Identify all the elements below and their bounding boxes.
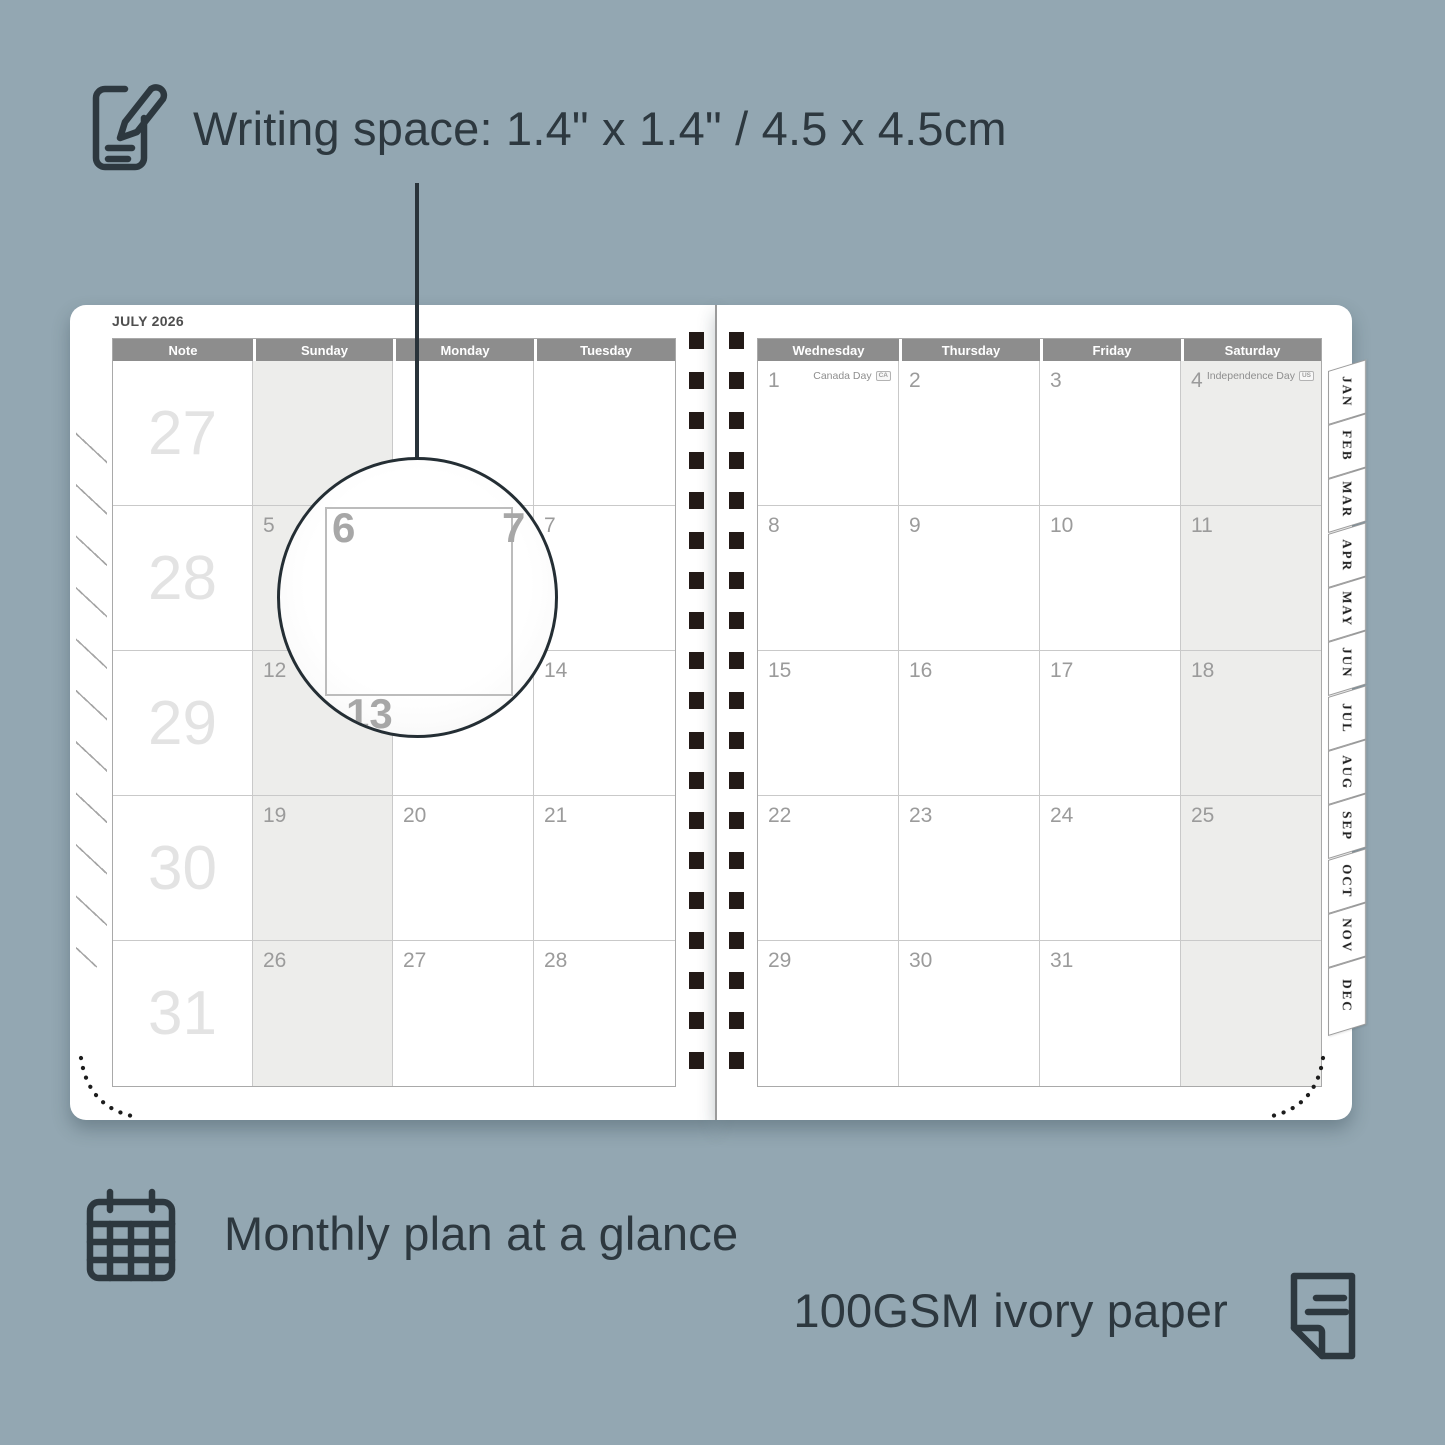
week-number-cell: 31	[113, 941, 253, 1086]
calendar-cell: 29	[758, 941, 899, 1086]
column-header-sunday: Sunday	[253, 339, 393, 361]
calendar-cell: 27	[393, 941, 534, 1086]
country-badge: CA	[876, 371, 891, 381]
calendar-cell: 2	[899, 361, 1040, 506]
column-header-friday: Friday	[1040, 339, 1181, 361]
annotation-pointer-line	[415, 183, 419, 465]
spiral-binding-left-column	[689, 332, 704, 1070]
column-header-wednesday: Wednesday	[758, 339, 899, 361]
calendar-cell	[1181, 941, 1321, 1086]
note-pencil-icon	[84, 72, 174, 174]
paper-sheet-icon	[1278, 1268, 1364, 1364]
calendar-cell-canada-day: 1 Canada Day CA	[758, 361, 899, 506]
page-edge-hatch-decoration	[76, 402, 107, 998]
calendar-cell: 8	[758, 506, 899, 651]
monthly-plan-caption: Monthly plan at a glance	[224, 1206, 738, 1261]
calendar-cell: 28	[534, 941, 675, 1086]
week-number-cell: 27	[113, 361, 253, 506]
week-number-cell: 30	[113, 796, 253, 941]
calendar-cell: 23	[899, 796, 1040, 941]
calendar-cell	[534, 361, 675, 506]
calendar-cell: 25	[1181, 796, 1321, 941]
date-number: 4	[1191, 369, 1203, 392]
date-number: 1	[768, 369, 780, 392]
country-badge: US	[1299, 371, 1314, 381]
magnified-date: 7	[502, 504, 525, 552]
calendar-cell: 9	[899, 506, 1040, 651]
week-number-cell: 28	[113, 506, 253, 651]
calendar-grid-icon	[84, 1188, 178, 1286]
spiral-binding-right-column	[729, 332, 744, 1070]
magnifier-circle: 6 7 13	[277, 457, 558, 738]
calendar-cell: 11	[1181, 506, 1321, 651]
writing-space-caption: Writing space: 1.4" x 1.4" / 4.5 x 4.5cm	[193, 101, 1007, 156]
calendar-cell: 30	[899, 941, 1040, 1086]
calendar-cell: 22	[758, 796, 899, 941]
magnified-date: 13	[346, 690, 393, 738]
week-number-cell: 29	[113, 651, 253, 796]
calendar-cell: 14	[534, 651, 675, 796]
calendar-cell: 31	[1040, 941, 1181, 1086]
calendar-cell: 10	[1040, 506, 1181, 651]
calendar-cell: 26	[253, 941, 393, 1086]
page-spine-divider	[715, 305, 717, 1120]
tab-dec: DEC	[1328, 956, 1366, 1036]
holiday-label: Canada Day CA	[813, 370, 891, 382]
calendar-cell: 24	[1040, 796, 1181, 941]
month-title: JULY 2026	[112, 313, 184, 329]
column-header-note: Note	[113, 339, 253, 361]
product-infographic: Writing space: 1.4" x 1.4" / 4.5 x 4.5cm…	[0, 0, 1445, 1445]
paper-caption: 100GSM ivory paper	[793, 1283, 1228, 1338]
column-header-tuesday: Tuesday	[534, 339, 675, 361]
calendar-cell: 16	[899, 651, 1040, 796]
column-header-thursday: Thursday	[899, 339, 1040, 361]
calendar-cell: 18	[1181, 651, 1321, 796]
calendar-grid-right: Wednesday Thursday Friday Saturday 1 Can…	[757, 338, 1322, 1087]
calendar-cell: 20	[393, 796, 534, 941]
calendar-cell: 15	[758, 651, 899, 796]
calendar-cell: 19	[253, 796, 393, 941]
column-header-saturday: Saturday	[1181, 339, 1321, 361]
calendar-cell: 21	[534, 796, 675, 941]
holiday-label: Independence Day US	[1207, 370, 1314, 382]
calendar-cell-independence-day: 4 Independence Day US	[1181, 361, 1321, 506]
magnified-date: 6	[332, 504, 355, 552]
calendar-cell: 3	[1040, 361, 1181, 506]
calendar-cell: 17	[1040, 651, 1181, 796]
